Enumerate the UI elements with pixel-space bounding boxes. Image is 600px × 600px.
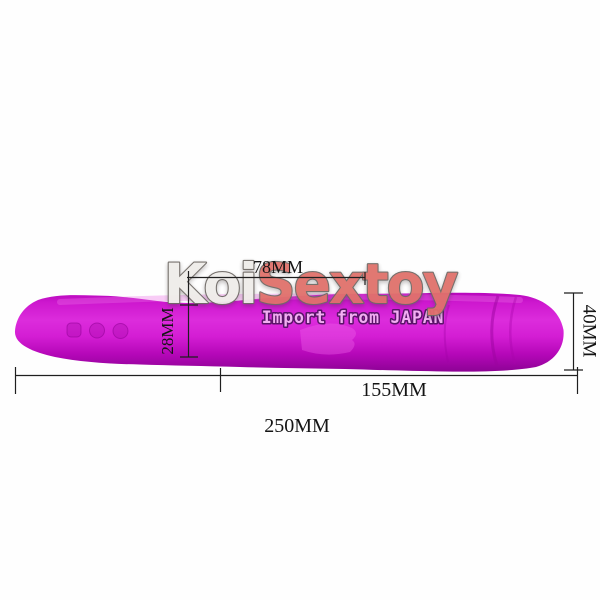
control-button-3: [113, 324, 128, 339]
dim-label-insertable-length: 155MM: [361, 379, 427, 401]
dim-label-total-length: 250MM: [264, 415, 330, 437]
control-button-1: [67, 323, 81, 337]
product-illustration: Import from JAPAN KoiSextoy: [0, 0, 600, 600]
dim-label-shaft-diameter: 28MM: [158, 307, 177, 354]
watermark-layer: KoiSextoy: [164, 252, 458, 316]
dim-label-top-width: 78MM: [253, 257, 303, 277]
dim-label-head-diameter: 40MM: [579, 305, 600, 358]
rabbit-stimulator-highlight: [300, 323, 356, 354]
control-buttons: [67, 323, 128, 339]
control-button-2: [90, 323, 105, 338]
watermark-brand: KoiSextoy: [164, 252, 458, 316]
watermark-brand-part1: Koi: [164, 252, 256, 316]
product-photo-stage: Import from JAPAN KoiSextoy: [0, 0, 600, 600]
